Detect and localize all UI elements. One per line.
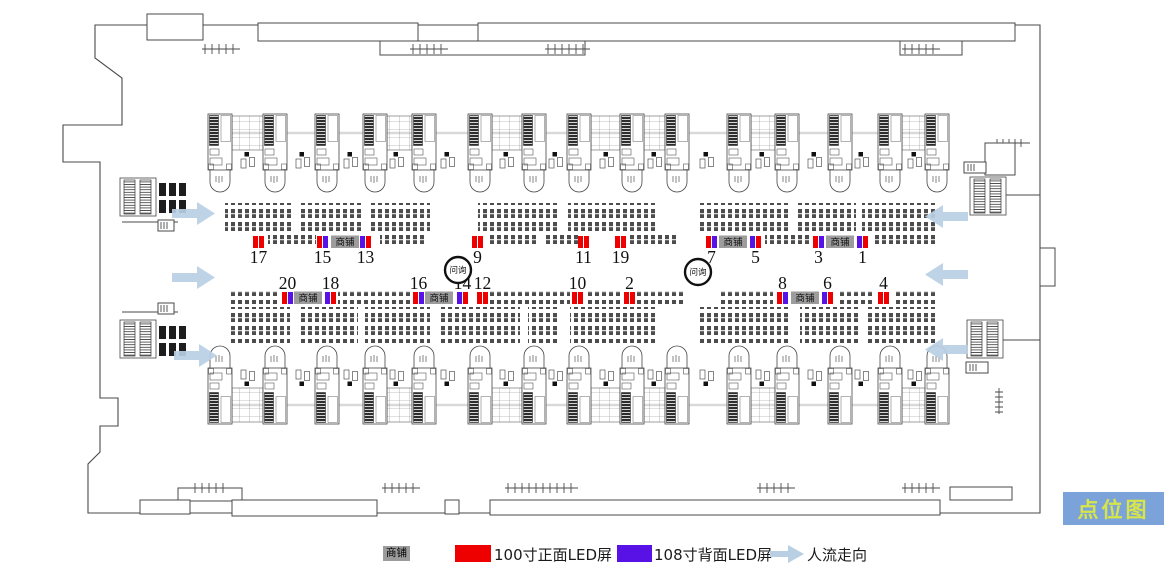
- page-title: 点位图: [1063, 492, 1164, 525]
- position-number: 18: [322, 273, 340, 293]
- position-number: 8: [778, 273, 787, 293]
- flow-arrow-icon: [925, 263, 968, 286]
- shop-box-label: 商铺: [723, 237, 742, 249]
- shop-box-label: 商铺: [429, 293, 448, 305]
- flow-arrow-icon: [770, 545, 804, 563]
- legend-front-led-swatch: [455, 545, 491, 562]
- led-marker-red: [477, 292, 482, 304]
- stair-ticks: [192, 44, 1030, 493]
- position-number: 3: [814, 247, 823, 267]
- shop-box-label: 商铺: [298, 293, 317, 305]
- led-marker-red: [624, 292, 629, 304]
- position-number: 10: [569, 273, 587, 293]
- led-marker-red: [483, 292, 488, 304]
- shop-box-label: 商铺: [795, 293, 814, 305]
- led-marker-red: [413, 292, 418, 304]
- floor-plan-svg: 1715139111975312018161412102864商铺商铺商铺商铺商…: [0, 0, 1169, 579]
- position-number: 2: [625, 273, 634, 293]
- legend-back-led-label: 108寸背面LED屏: [654, 544, 772, 565]
- position-number: 15: [314, 247, 332, 267]
- position-number: 16: [410, 273, 428, 293]
- building-outline: [63, 14, 1055, 516]
- info-circle-label: 问询: [689, 267, 706, 278]
- led-marker-purple: [325, 292, 330, 304]
- led-marker-red: [331, 292, 336, 304]
- led-marker-purple: [419, 292, 424, 304]
- floor-plan-page: 1715139111975312018161412102864商铺商铺商铺商铺商…: [0, 0, 1169, 579]
- position-number: 5: [751, 247, 760, 267]
- led-marker-purple: [822, 292, 827, 304]
- info-circle-label: 问询: [449, 265, 466, 276]
- shop-box-label: 商铺: [335, 237, 354, 249]
- booth-row-top: [208, 114, 949, 192]
- led-marker-purple: [288, 292, 293, 304]
- flow-arrow-icon: [172, 202, 215, 225]
- position-number: 19: [612, 247, 630, 267]
- led-marker-red: [878, 292, 883, 304]
- position-number: 11: [575, 247, 592, 267]
- position-number: 20: [279, 273, 297, 293]
- position-number: 17: [250, 247, 268, 267]
- led-marker-red: [578, 292, 583, 304]
- position-number: 6: [823, 273, 832, 293]
- led-marker-purple: [457, 292, 462, 304]
- booth-row-bottom: [208, 346, 949, 424]
- led-marker-red: [777, 292, 782, 304]
- position-number: 13: [357, 247, 375, 267]
- legend-front-led-label: 100寸正面LED屏: [494, 544, 612, 565]
- legend-flow-label: 人流走向: [807, 544, 867, 565]
- position-number: 4: [879, 273, 888, 293]
- led-marker-red: [463, 292, 468, 304]
- legend-shop-swatch: 商铺: [383, 546, 410, 561]
- led-marker-purple: [783, 292, 788, 304]
- led-marker-red: [884, 292, 889, 304]
- position-number: 1: [858, 247, 867, 267]
- flow-arrow-icon: [172, 266, 215, 289]
- led-marker-red: [282, 292, 287, 304]
- position-number: 12: [474, 273, 492, 293]
- shop-box-label: 商铺: [830, 237, 849, 249]
- led-marker-red: [572, 292, 577, 304]
- position-number: 9: [473, 247, 482, 267]
- led-marker-red: [630, 292, 635, 304]
- legend-back-led-swatch: [617, 545, 652, 562]
- led-marker-red: [828, 292, 833, 304]
